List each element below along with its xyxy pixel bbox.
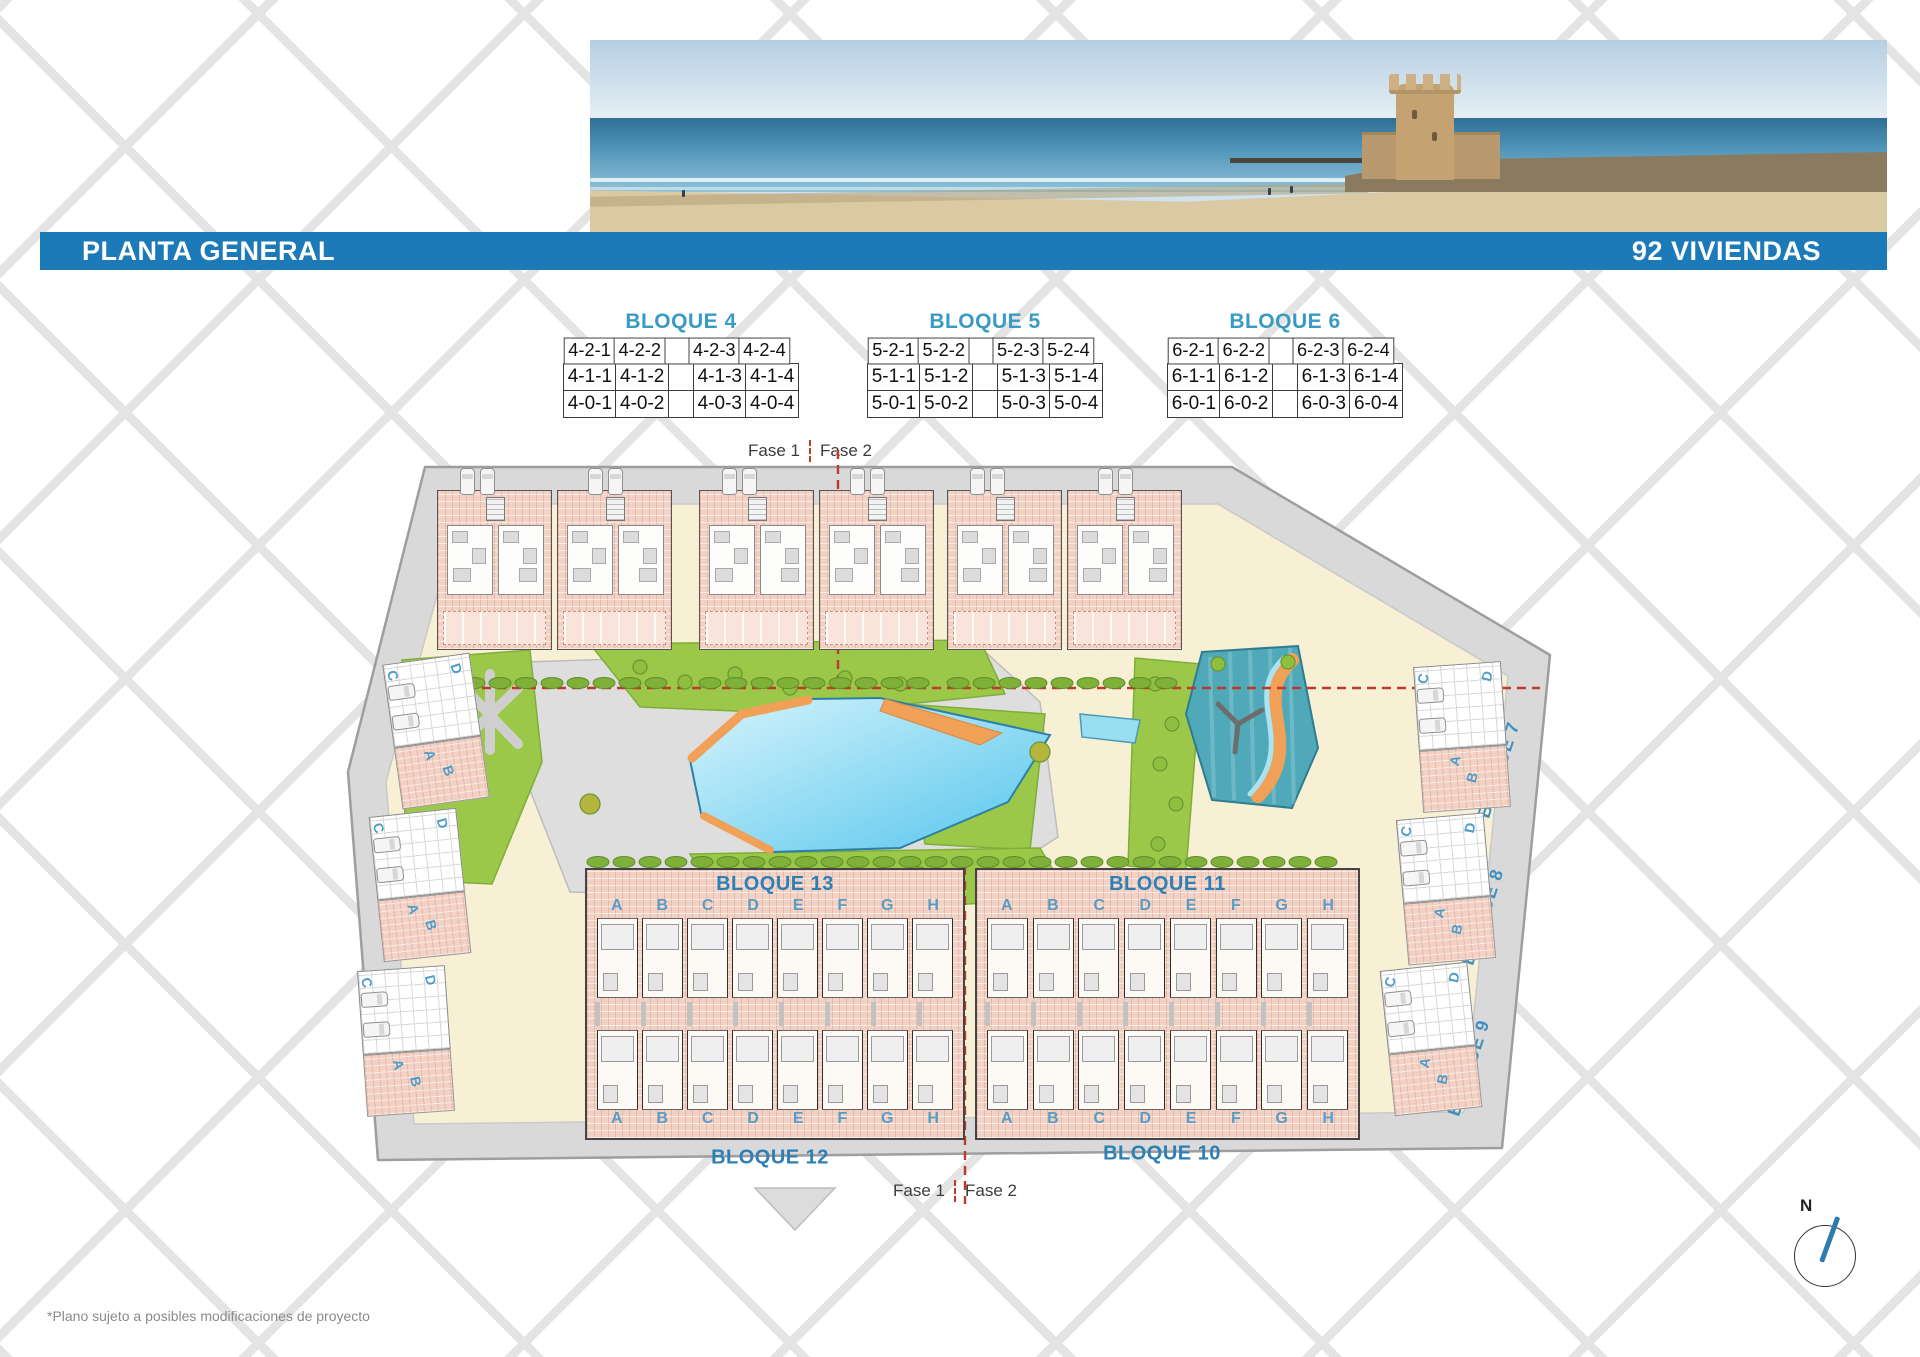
hedge	[973, 678, 995, 689]
unit-letter: A	[611, 897, 623, 915]
side-unit-cluster: CABD	[1396, 812, 1496, 965]
unit-table-bloque-6: BLOQUE 6 6-2-16-2-26-2-36-2-46-1-16-1-26…	[1151, 310, 1419, 417]
hedge	[855, 678, 877, 689]
hedge	[951, 857, 973, 868]
unit-letter: B	[656, 897, 668, 915]
unit-letter: G	[1275, 897, 1287, 915]
unit-number-cell: 5-0-3	[997, 390, 1051, 418]
townhouse-unit-plan	[687, 918, 728, 998]
hedge	[1237, 857, 1259, 868]
unit-number-cell: 5-2-3	[992, 338, 1044, 365]
site-plan: BLOQUE 13 ABCDEFGH ABCDEFGH BLOQUE 11 AB…	[340, 452, 1560, 1212]
hedge	[1129, 678, 1151, 689]
townhouse-unit-plan	[777, 918, 818, 998]
apartment-unit	[1008, 525, 1054, 595]
parked-car	[1417, 687, 1445, 704]
townhouse-unit-plan	[867, 1030, 908, 1110]
parked-car	[460, 468, 475, 495]
unit-letter: C	[1093, 897, 1105, 915]
unit-row	[987, 1030, 1348, 1110]
photo-sky	[590, 40, 1887, 124]
unit-letter: C	[1093, 1110, 1105, 1128]
townhouse-unit-plan	[1216, 1030, 1257, 1110]
unit-letter: F	[1231, 1110, 1241, 1128]
townhouse-unit-plan	[822, 918, 863, 998]
unit-number-cell: 6-1-3	[1297, 363, 1351, 391]
terrace-strip	[1073, 611, 1176, 645]
block-label-bloque-10: BLOQUE 10	[1103, 1143, 1221, 1166]
apartment-building-plan	[947, 490, 1062, 650]
terrace-strip	[953, 611, 1056, 645]
parked-car	[990, 468, 1005, 495]
tree	[633, 660, 647, 674]
table-title: BLOQUE 6	[1151, 310, 1419, 334]
tree	[1281, 655, 1295, 669]
terrace-strip	[443, 611, 546, 645]
townhouse-unit-plan	[1261, 918, 1302, 998]
parked-car	[608, 468, 623, 495]
hedge	[699, 678, 721, 689]
unit-number-cell: 6-0-3	[1297, 390, 1351, 418]
apartment-unit	[957, 525, 1003, 595]
townhouse-unit-plan	[1124, 1030, 1165, 1110]
unit-letter: D	[1140, 897, 1152, 915]
unit-table-row: 5-1-15-1-25-1-35-1-4	[851, 364, 1119, 390]
hedge	[665, 857, 687, 868]
townhouse-unit-plan	[732, 918, 773, 998]
townhouse-unit-plan	[642, 918, 683, 998]
apartment-building-plan	[819, 490, 934, 650]
block-corridor	[595, 1002, 955, 1026]
parked-car	[361, 991, 389, 1008]
table-grid: 6-2-16-2-26-2-36-2-46-1-16-1-26-1-36-1-4…	[1151, 338, 1419, 417]
townhouse-unit-plan	[912, 918, 953, 998]
spacer-cell	[1268, 338, 1294, 365]
unit-number-cell: 4-1-3	[693, 363, 747, 391]
unit-number-cell: 4-0-3	[693, 390, 747, 418]
apartment-building-plan	[557, 490, 672, 650]
stair-core	[748, 497, 767, 521]
block-13-12: BLOQUE 13 ABCDEFGH ABCDEFGH	[585, 868, 965, 1140]
stair-core	[996, 497, 1015, 521]
unit-letter: F	[1231, 897, 1241, 915]
townhouse-unit-plan	[1033, 918, 1074, 998]
hedge	[1103, 678, 1125, 689]
hedge	[1055, 857, 1077, 868]
hedge	[619, 678, 641, 689]
townhouse-unit-plan	[687, 1030, 728, 1110]
townhouse-unit-plan	[642, 1030, 683, 1110]
parked-car	[742, 468, 757, 495]
hedge	[717, 857, 739, 868]
unit-letter: H	[1322, 897, 1334, 915]
hedge	[803, 678, 825, 689]
parked-car	[363, 1021, 391, 1038]
block-label-bloque-12: BLOQUE 12	[711, 1147, 829, 1170]
unit-letter: H	[927, 1110, 939, 1128]
unit-number-cell: 5-0-4	[1049, 390, 1103, 418]
tree	[678, 675, 692, 689]
hedge	[795, 857, 817, 868]
spacer-cell	[668, 363, 695, 391]
townhouse-unit-plan	[1261, 1030, 1302, 1110]
tree	[580, 794, 600, 814]
apartment-unit	[447, 525, 493, 595]
hedge	[847, 857, 869, 868]
photo-person	[1290, 186, 1293, 193]
unit-letter: B	[1047, 897, 1059, 915]
tree	[1169, 797, 1183, 811]
compass-needle	[1819, 1216, 1840, 1263]
hedge	[899, 857, 921, 868]
hedge	[873, 857, 895, 868]
unit-number-cell: 6-1-2	[1219, 363, 1273, 391]
hedge	[1081, 857, 1103, 868]
spacer-cell	[668, 390, 695, 418]
unit-letter: D	[747, 1110, 759, 1128]
hedge	[645, 678, 667, 689]
unit-number-cell: 6-2-3	[1292, 338, 1344, 365]
side-unit-cluster: CABD	[357, 965, 455, 1117]
unit-number-cell: 5-1-2	[919, 363, 973, 391]
apartment-unit	[1077, 525, 1123, 595]
block-11-10: BLOQUE 11 ABCDEFGH ABCDEFGH	[975, 868, 1360, 1140]
tree	[1030, 742, 1050, 762]
parked-car	[376, 866, 404, 884]
unit-table-row: 5-0-15-0-25-0-35-0-4	[851, 391, 1119, 417]
north-label: N	[1800, 1196, 1812, 1216]
photo-person	[682, 190, 685, 197]
townhouse-unit-plan	[732, 1030, 773, 1110]
block-label: BLOQUE 13	[587, 873, 963, 896]
unit-number-cell: 4-2-3	[688, 338, 740, 365]
spacer-cell	[972, 363, 999, 391]
unit-letter: G	[1275, 1110, 1287, 1128]
townhouse-unit-plan	[597, 918, 638, 998]
unit-letter: E	[1186, 897, 1197, 915]
unit-letter: E	[793, 1110, 804, 1128]
stair-core	[1116, 497, 1135, 521]
hedge	[1107, 857, 1129, 868]
tree	[1151, 837, 1165, 851]
unit-letter: H	[927, 897, 939, 915]
townhouse-unit-plan	[1124, 918, 1165, 998]
hedge	[743, 857, 765, 868]
hedge	[1263, 857, 1285, 868]
hedge	[1289, 857, 1311, 868]
table-title: BLOQUE 4	[547, 310, 815, 334]
unit-table-row: 6-0-16-0-26-0-36-0-4	[1151, 391, 1419, 417]
unit-number-cell: 6-0-4	[1349, 390, 1403, 418]
unit-number-cell: 4-1-2	[615, 363, 669, 391]
apartment-unit	[709, 525, 755, 595]
townhouse-unit-plan	[1170, 1030, 1211, 1110]
unit-letter: G	[881, 897, 893, 915]
hedge	[907, 678, 929, 689]
page-title: PLANTA GENERAL	[82, 236, 335, 267]
townhouse-unit-plan	[822, 1030, 863, 1110]
hedge	[925, 857, 947, 868]
townhouse-unit-plan	[987, 1030, 1028, 1110]
hedge	[1185, 857, 1207, 868]
townhouse-unit-plan	[1078, 918, 1119, 998]
unit-letter-row: ABCDEFGH	[611, 1110, 939, 1128]
hedge	[567, 678, 589, 689]
hedge	[639, 857, 661, 868]
parked-car	[1419, 717, 1447, 734]
hedge	[725, 678, 747, 689]
unit-letter: G	[881, 1110, 893, 1128]
apartment-unit	[829, 525, 875, 595]
townhouse-unit-plan	[1078, 1030, 1119, 1110]
unit-number-cell: 6-0-1	[1167, 390, 1221, 418]
title-bar: PLANTA GENERAL 92 VIVIENDAS	[40, 232, 1887, 270]
apartment-unit	[618, 525, 664, 595]
parked-car	[1387, 1020, 1415, 1038]
block-corridor	[985, 1002, 1350, 1026]
unit-table-row: 6-1-16-1-26-1-36-1-4	[1151, 364, 1419, 390]
table-title: BLOQUE 5	[851, 310, 1119, 334]
townhouse-unit-plan	[777, 1030, 818, 1110]
unit-row	[597, 918, 953, 998]
photo-castle-window	[1432, 132, 1437, 141]
unit-letter: A	[1001, 897, 1013, 915]
hedge	[1315, 857, 1337, 868]
townhouse-unit-plan	[1033, 1030, 1074, 1110]
unit-number-cell: 4-2-4	[739, 338, 791, 365]
hedge	[1025, 678, 1047, 689]
hedge	[541, 678, 563, 689]
apartment-building-plan	[437, 490, 552, 650]
unit-number-cell: 5-2-2	[918, 338, 970, 365]
unit-letter: B	[1047, 1110, 1059, 1128]
unit-letter: H	[1322, 1110, 1334, 1128]
hedge	[1155, 678, 1177, 689]
townhouse-unit-plan	[1216, 918, 1257, 998]
unit-number-cell: 5-1-1	[867, 363, 921, 391]
unit-number-cell: 6-1-1	[1167, 363, 1221, 391]
table-grid: 5-2-15-2-25-2-35-2-45-1-15-1-25-1-35-1-4…	[851, 338, 1119, 417]
photo-castle-battlements	[1389, 74, 1461, 94]
apartment-unit	[760, 525, 806, 595]
hedge	[999, 678, 1021, 689]
hedge	[821, 857, 843, 868]
townhouse-unit-plan	[1307, 1030, 1348, 1110]
disclaimer-footnote: *Plano sujeto a posibles modificaciones …	[47, 1308, 370, 1324]
unit-table-row: 4-2-14-2-24-2-34-2-4	[548, 339, 805, 364]
unit-letter: C	[702, 1110, 714, 1128]
parked-car	[1384, 990, 1412, 1008]
hedge	[613, 857, 635, 868]
unit-table-bloque-5: BLOQUE 5 5-2-15-2-25-2-35-2-45-1-15-1-25…	[851, 310, 1119, 417]
townhouse-unit-plan	[867, 918, 908, 998]
townhouse-unit-plan	[1307, 918, 1348, 998]
apartment-unit	[880, 525, 926, 595]
hedge	[1077, 678, 1099, 689]
unit-letter: C	[702, 897, 714, 915]
unit-letter: D	[747, 897, 759, 915]
parked-car	[1098, 468, 1113, 495]
entrance-marker	[755, 1188, 835, 1230]
block-label: BLOQUE 11	[977, 873, 1358, 896]
apartment-building-plan	[1067, 490, 1182, 650]
spacer-cell	[1272, 363, 1299, 391]
hedge	[881, 678, 903, 689]
stair-core	[868, 497, 887, 521]
table-grid: 4-2-14-2-24-2-34-2-44-1-14-1-24-1-34-1-4…	[547, 338, 815, 417]
spacer-cell	[972, 390, 999, 418]
compass	[1794, 1225, 1856, 1287]
unit-number-cell: 6-1-4	[1349, 363, 1403, 391]
photo-castle-tower	[1396, 84, 1454, 180]
photo-person	[1268, 188, 1271, 195]
unit-letter-row: ABCDEFGH	[1001, 1110, 1334, 1128]
apartment-unit	[1128, 525, 1174, 595]
terrace-strip	[705, 611, 808, 645]
parked-car	[588, 468, 603, 495]
parked-car	[1400, 840, 1428, 857]
parked-car	[373, 836, 401, 854]
hedge	[515, 678, 537, 689]
hedge	[751, 678, 773, 689]
unit-letter: E	[1186, 1110, 1197, 1128]
spacer-cell	[664, 338, 690, 365]
unit-letter: B	[656, 1110, 668, 1128]
hedge	[691, 857, 713, 868]
apartment-unit	[498, 525, 544, 595]
hedge	[1211, 857, 1233, 868]
hedge	[947, 678, 969, 689]
side-unit-cluster: CABD	[1413, 661, 1511, 813]
tree	[1165, 717, 1179, 731]
unit-number-cell: 5-1-3	[997, 363, 1051, 391]
unit-number-cell: 4-0-4	[745, 390, 799, 418]
unit-number-cell: 5-2-4	[1043, 338, 1095, 365]
hedge	[593, 678, 615, 689]
hedge	[1029, 857, 1051, 868]
parked-car	[1118, 468, 1133, 495]
hedge	[777, 678, 799, 689]
hedge	[829, 678, 851, 689]
unit-number-cell: 4-2-2	[614, 338, 666, 365]
unit-number-cell: 4-0-2	[615, 390, 669, 418]
unit-row	[987, 918, 1348, 998]
parked-car	[1402, 869, 1430, 886]
unit-letter: F	[837, 1110, 847, 1128]
terrace-strip	[563, 611, 666, 645]
unit-letter-row: ABCDEFGH	[611, 897, 939, 915]
unit-number-cell: 5-1-4	[1049, 363, 1103, 391]
unit-table-row: 6-2-16-2-26-2-36-2-4	[1152, 339, 1409, 364]
hedge	[1003, 857, 1025, 868]
hedge	[587, 857, 609, 868]
side-unit-cluster: CABD	[369, 808, 472, 962]
unit-letter-row: ABCDEFGH	[1001, 897, 1334, 915]
unit-number-cell: 6-2-2	[1218, 338, 1270, 365]
unit-number-cell: 6-0-2	[1219, 390, 1273, 418]
apartment-unit	[567, 525, 613, 595]
unit-number-cell: 5-0-1	[867, 390, 921, 418]
unit-table-bloque-4: BLOQUE 4 4-2-14-2-24-2-34-2-44-1-14-1-24…	[547, 310, 815, 417]
stair-core	[606, 497, 625, 521]
unit-number-cell: 5-2-1	[868, 338, 920, 365]
beach-photo	[590, 40, 1887, 232]
unit-table-row: 4-1-14-1-24-1-34-1-4	[547, 364, 815, 390]
unit-row	[597, 1030, 953, 1110]
unit-number-cell: 4-2-1	[564, 338, 616, 365]
unit-letter: D	[1140, 1110, 1152, 1128]
unit-letter: A	[1001, 1110, 1013, 1128]
unit-number-cell: 4-1-4	[745, 363, 799, 391]
hedge	[1159, 857, 1181, 868]
stair-core	[486, 497, 505, 521]
unit-letter: F	[837, 897, 847, 915]
parked-car	[850, 468, 865, 495]
parked-car	[870, 468, 885, 495]
parked-car	[722, 468, 737, 495]
spacer-cell	[1272, 390, 1299, 418]
townhouse-unit-plan	[912, 1030, 953, 1110]
unit-number-cell: 6-2-1	[1168, 338, 1220, 365]
units-count-label: 92 VIVIENDAS	[1632, 236, 1821, 267]
unit-letter: E	[793, 897, 804, 915]
hedge	[1051, 678, 1073, 689]
townhouse-unit-plan	[1170, 918, 1211, 998]
spacer-cell	[968, 338, 994, 365]
parked-car	[970, 468, 985, 495]
unit-letter: A	[611, 1110, 623, 1128]
townhouse-unit-plan	[987, 918, 1028, 998]
hedge	[1133, 857, 1155, 868]
unit-floorplan	[382, 653, 481, 748]
hedge	[769, 857, 791, 868]
hedge	[977, 857, 999, 868]
tree	[1211, 657, 1225, 671]
unit-table-row: 5-2-15-2-25-2-35-2-4	[852, 339, 1109, 364]
unit-number-cell: 4-0-1	[563, 390, 617, 418]
unit-number-cell: 4-1-1	[563, 363, 617, 391]
apartment-building-plan	[699, 490, 814, 650]
unit-number-cell: 6-2-4	[1343, 338, 1395, 365]
townhouse-unit-plan	[597, 1030, 638, 1110]
parked-car	[480, 468, 495, 495]
unit-number-cell: 5-0-2	[919, 390, 973, 418]
side-unit-cluster: CABD	[1380, 962, 1483, 1116]
terrace-strip	[825, 611, 928, 645]
unit-table-row: 4-0-14-0-24-0-34-0-4	[547, 391, 815, 417]
hedge	[489, 678, 511, 689]
tree	[1153, 757, 1167, 771]
photo-castle-window	[1412, 110, 1417, 119]
